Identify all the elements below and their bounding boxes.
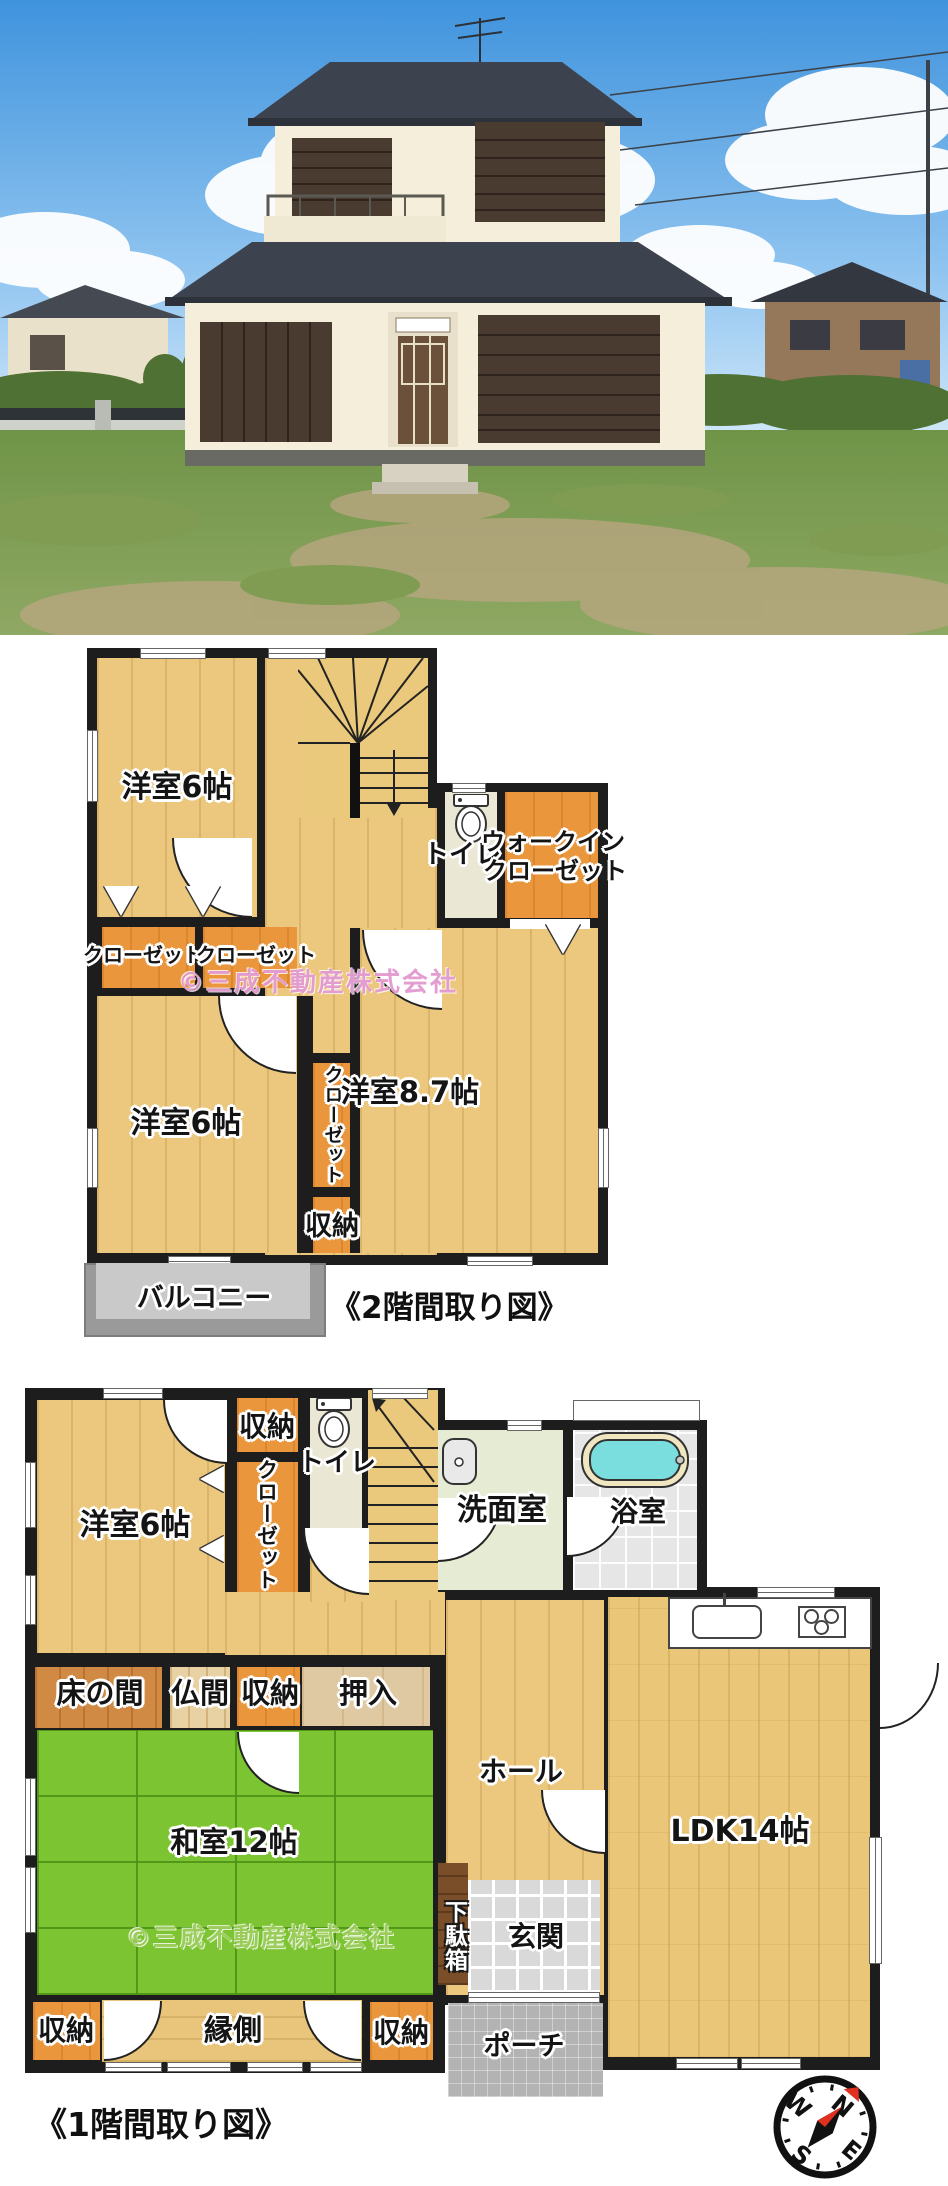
room-label-bathroom: 浴室	[603, 1496, 673, 1528]
folding-door-mark	[186, 886, 220, 916]
window	[25, 1462, 36, 1528]
window	[140, 648, 206, 659]
window	[372, 1388, 428, 1399]
room-label-storage-2f: 収納	[300, 1210, 364, 1242]
washbasin-icon	[442, 1435, 478, 1487]
window	[25, 1867, 36, 1933]
room-label-storage-top-1f: 収納	[230, 1411, 304, 1443]
window	[167, 2062, 231, 2072]
window	[310, 2062, 362, 2072]
window	[25, 1575, 36, 1625]
window	[452, 783, 486, 793]
stove-burner	[814, 1620, 829, 1635]
room-label-butsuma: 仏間	[164, 1676, 236, 1710]
room-label-porch: ポーチ	[474, 2029, 574, 2063]
room-label-hall: ホール	[470, 1756, 572, 1788]
bath-ledge	[573, 1400, 700, 1421]
window	[757, 1587, 835, 1598]
room-label-toilet-1f: トイレ	[296, 1448, 378, 1478]
floor1-washitsu-floor	[37, 1730, 433, 1995]
room-label-bedroom-top-2f: 洋室6帖	[97, 770, 257, 806]
room-label-oshiire: 押入	[330, 1676, 406, 1710]
compass-icon: N E S W	[768, 2070, 882, 2184]
wall	[428, 658, 437, 808]
folding-door-mark	[200, 1536, 224, 1562]
room-label-wic-line2: クローゼット	[493, 857, 617, 885]
folding-door-mark	[546, 924, 580, 954]
room-label-engawa: 縁側	[198, 2013, 268, 2047]
kitchen-sink	[692, 1605, 762, 1639]
room-label-bedroom-bottom-2f: 洋室6帖	[108, 1106, 264, 1142]
watermark-1f: ©三成不動産株式会社	[126, 1918, 396, 1954]
window	[87, 1128, 98, 1188]
floor2-title: 《2階間取り図》	[330, 1282, 569, 1327]
room-label-storage-bl: 収納	[31, 2014, 101, 2048]
kitchen-faucet	[723, 1593, 726, 1607]
room-label-washroom: 洗面室	[448, 1494, 556, 1528]
room-label-genkan: 玄関	[502, 1921, 570, 1953]
real-estate-listing-image: 洋室6帖 トイレ ウォークイン クローゼット クローゼット クローゼット 洋室6…	[0, 0, 948, 2186]
window	[25, 1778, 36, 1856]
window	[268, 648, 326, 659]
room-label-storage-br: 収納	[366, 2016, 436, 2050]
window	[869, 1837, 882, 1964]
floor2-notch	[437, 648, 608, 783]
watermark-2f: ©三成不動産株式会社	[178, 962, 458, 999]
staircase-2f	[298, 658, 428, 818]
window	[247, 2062, 303, 2072]
window	[598, 1128, 609, 1188]
bathtub-icon	[581, 1432, 689, 1488]
door-arc-exterior	[880, 1663, 939, 1729]
room-label-getabako: 下駄箱	[438, 1886, 468, 1986]
room-label-ldk: LDK14帖	[666, 1814, 814, 1850]
window	[676, 2058, 738, 2069]
house-photo	[0, 0, 948, 635]
room-label-bedroom-large: 洋室8.7帖	[338, 1074, 482, 1110]
room-label-washitsu: 和室12帖	[162, 1824, 306, 1860]
window	[507, 1420, 542, 1431]
room-label-balcony: バルコニー	[136, 1282, 272, 1314]
room-label-bedroom-1f: 洋室6帖	[70, 1508, 200, 1544]
room-label-closet-1f: クローゼット	[246, 1452, 286, 1598]
floor1-title: 《1階間取り図》	[34, 2098, 288, 2146]
window	[105, 2062, 162, 2072]
folding-door-mark	[104, 886, 138, 916]
toilet-icon	[312, 1398, 356, 1450]
room-label-storage-mid: 収納	[234, 1676, 306, 1710]
window	[467, 1256, 533, 1266]
room-label-wic-line1: ウォークイン	[493, 828, 613, 856]
entrance-door	[468, 1992, 600, 2003]
room-label-tokonoma: 床の間	[46, 1676, 154, 1710]
window	[741, 2058, 801, 2069]
folding-door-mark	[200, 1466, 224, 1492]
window	[103, 1388, 163, 1399]
staircase-1f	[368, 1390, 438, 1600]
